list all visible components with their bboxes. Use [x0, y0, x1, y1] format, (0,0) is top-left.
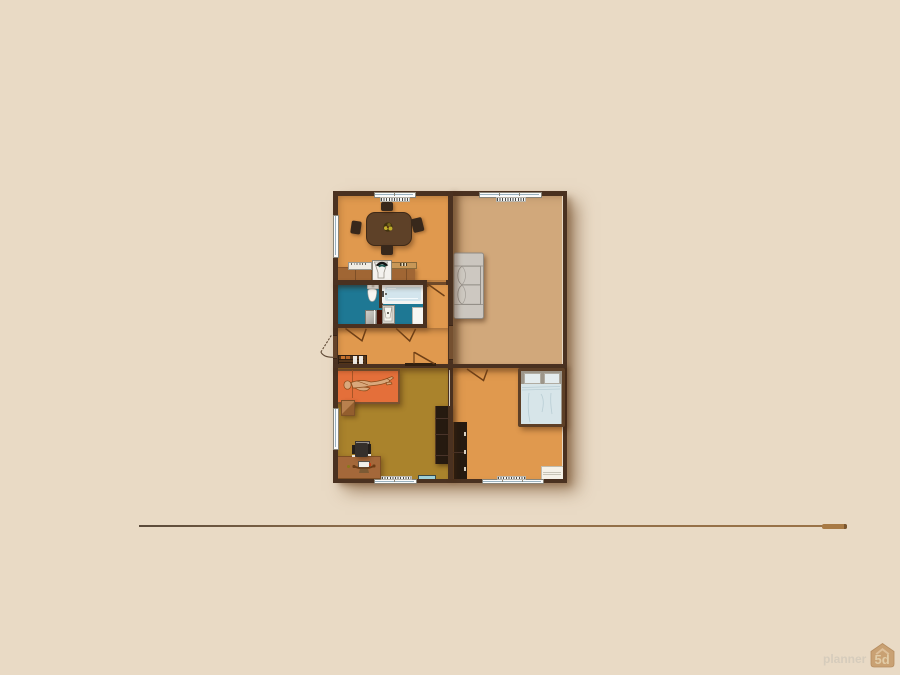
svg-text:5d: 5d	[875, 652, 890, 667]
